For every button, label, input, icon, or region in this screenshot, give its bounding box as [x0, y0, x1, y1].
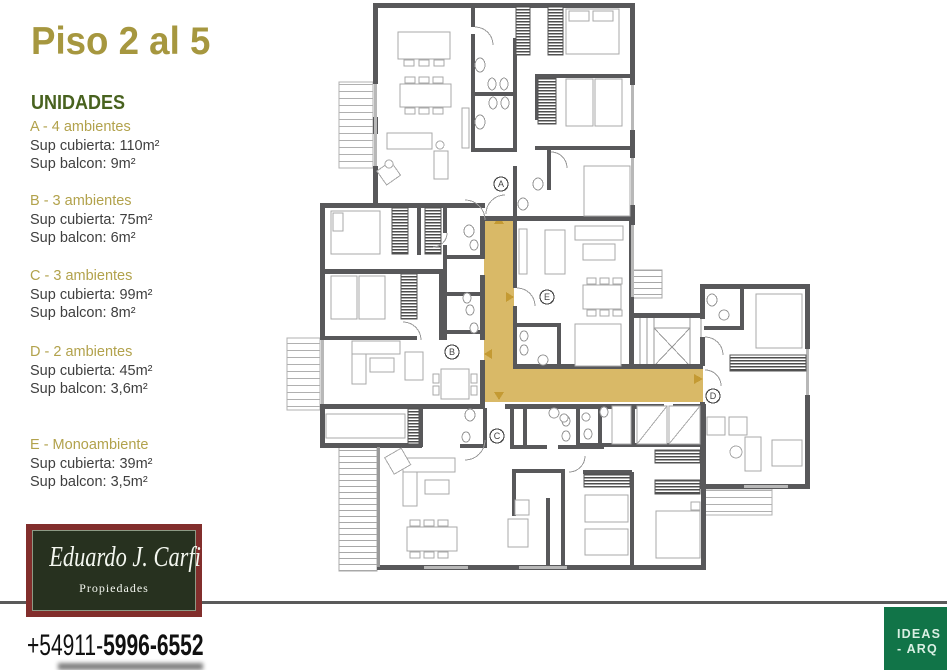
svg-text:E: E — [544, 292, 550, 302]
svg-text:C: C — [494, 431, 501, 441]
svg-text:D: D — [710, 391, 717, 401]
svg-text:B: B — [449, 347, 455, 357]
svg-text:A: A — [498, 179, 504, 189]
